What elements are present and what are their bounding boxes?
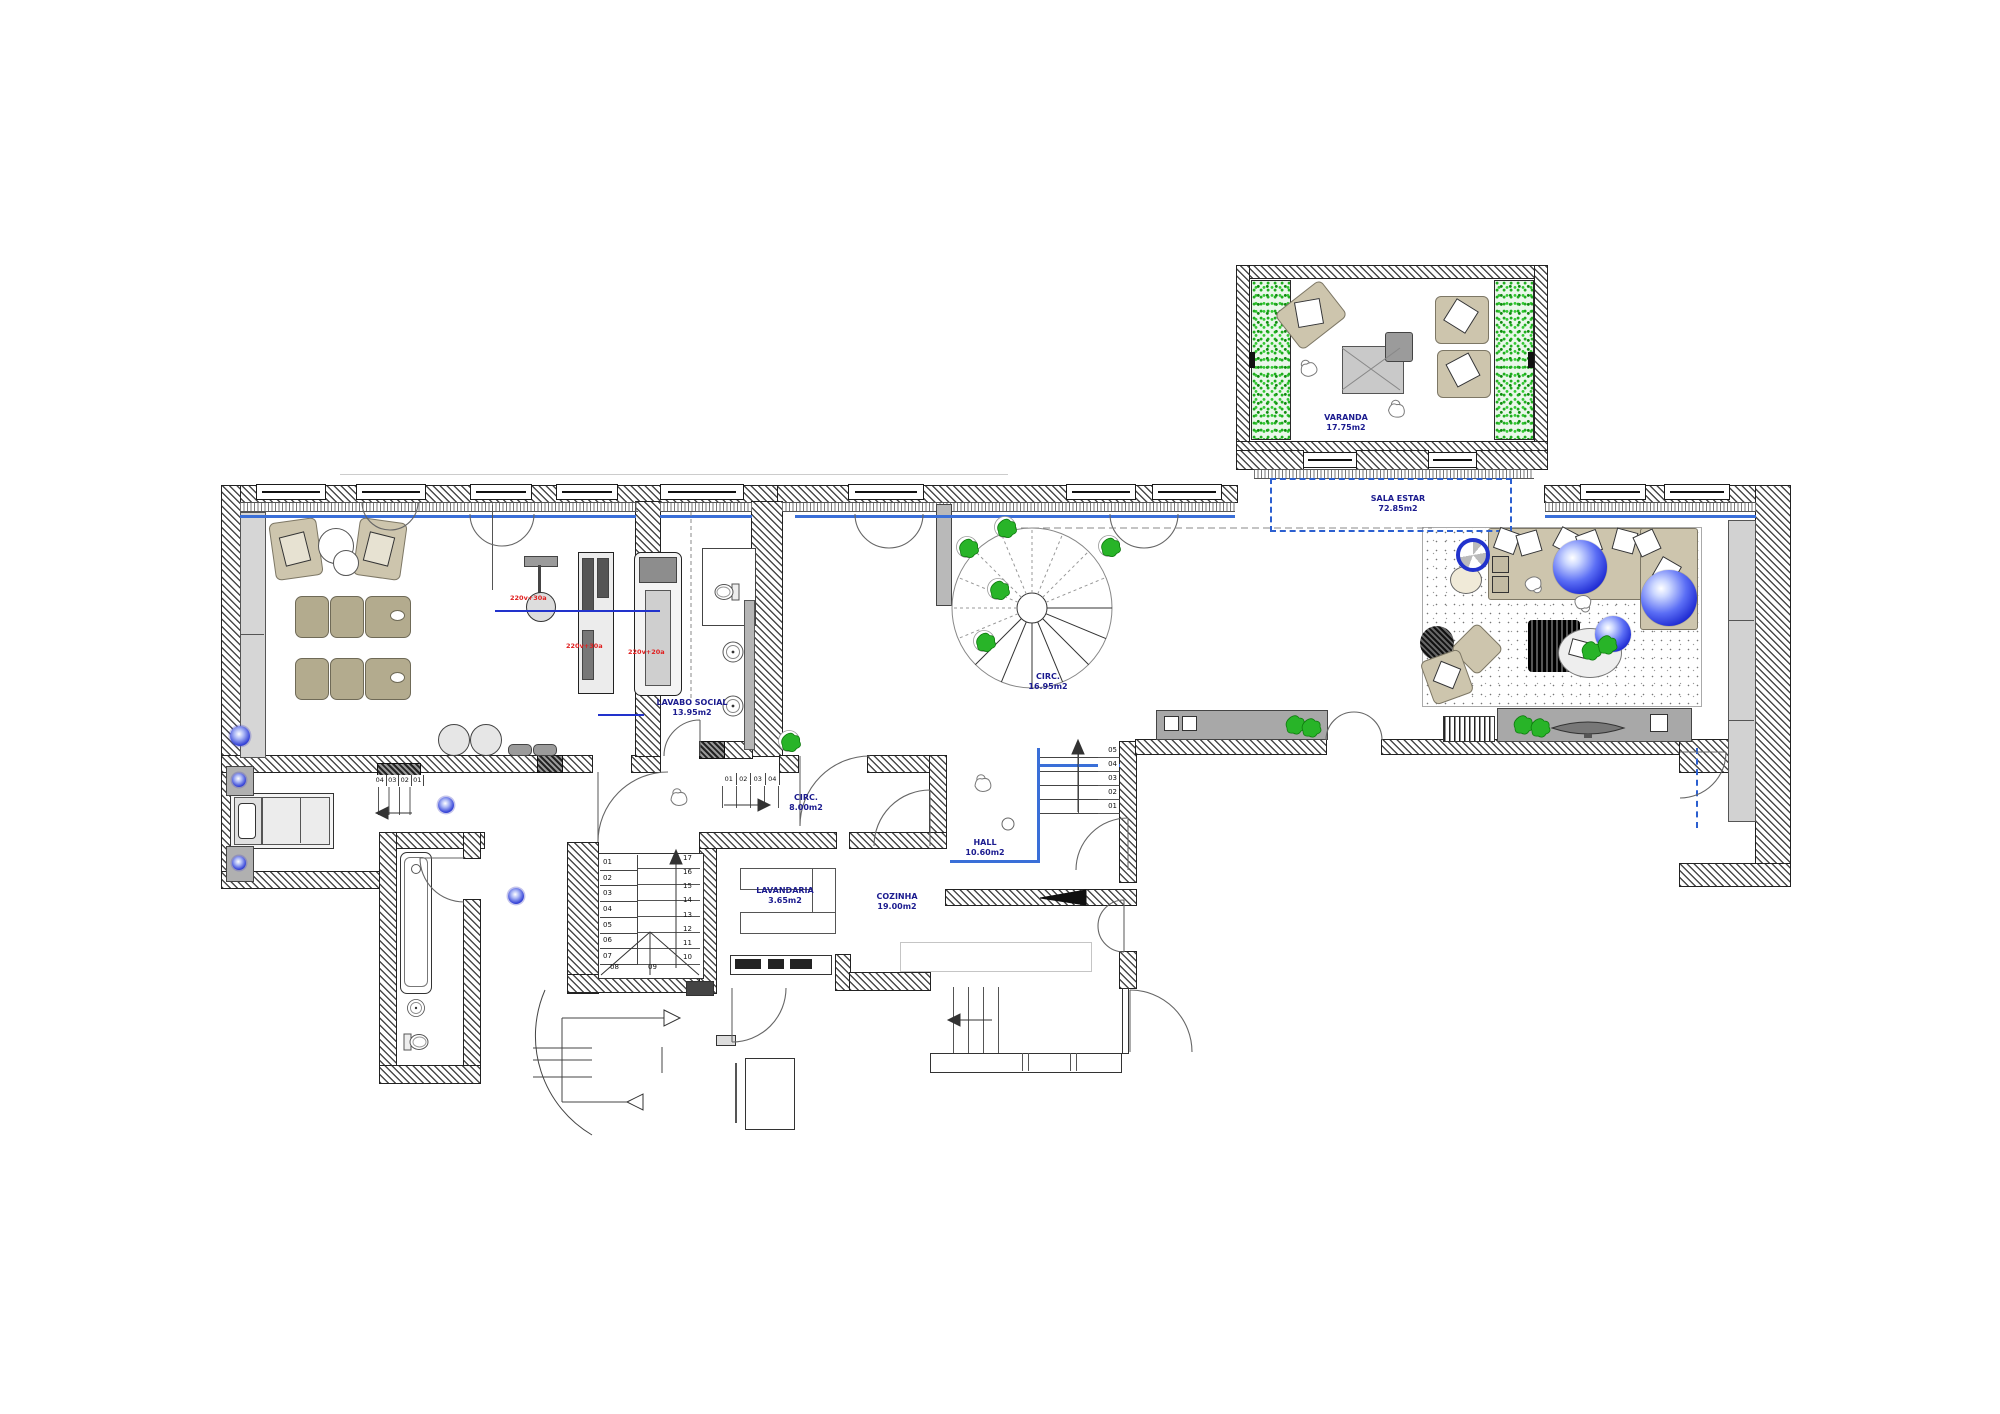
sala-label: SALA ESTAR 72.85m2 [1371, 494, 1425, 515]
lavandaria-area: 3.65m2 [768, 896, 802, 905]
linework-overlay [0, 0, 2000, 1414]
varanda-area: 17.75m2 [1326, 423, 1365, 432]
hall-label: HALL 10.60m2 [965, 838, 1004, 859]
lavabo-label: LAVABO SOCIAL 13.95m2 [657, 698, 728, 719]
floor-plan: VARANDA 17.75m2 [0, 0, 2000, 1414]
varanda-name: VARANDA [1324, 413, 1368, 422]
cozinha-area: 19.00m2 [877, 902, 916, 911]
circ-main-area: 16.95m2 [1028, 682, 1067, 691]
hall-name: HALL [973, 838, 996, 847]
circ-small-label: CIRC. 8.00m2 [789, 793, 823, 814]
person-figures [671, 358, 1592, 830]
lavandaria-name: LAVANDARIA [756, 886, 813, 895]
circ-small-area: 8.00m2 [789, 803, 823, 812]
door-arcs [362, 502, 1726, 1052]
curved-stair [533, 990, 680, 1135]
cozinha-label: COZINHA 19.00m2 [876, 892, 917, 913]
table-diagonals [1342, 348, 1400, 390]
hall-area: 10.60m2 [965, 848, 1004, 857]
lavabo-area: 13.95m2 [672, 708, 711, 717]
sala-area: 72.85m2 [1378, 504, 1417, 513]
lavabo-name: LAVABO SOCIAL [657, 698, 728, 707]
circ-main-name: CIRC. [1036, 672, 1060, 681]
circ-small-name: CIRC. [794, 793, 818, 802]
sanitary-fixtures [404, 584, 743, 1050]
varanda-label: VARANDA 17.75m2 [1324, 413, 1368, 434]
plant-icons [779, 517, 1618, 752]
sala-name: SALA ESTAR [1371, 494, 1425, 503]
cozinha-name: COZINHA [876, 892, 917, 901]
circ-main-label: CIRC. 16.95m2 [1028, 672, 1067, 693]
tv-icon [1552, 722, 1624, 738]
lavandaria-label: LAVANDARIA 3.65m2 [756, 886, 813, 907]
stair-winder-lines [601, 932, 699, 975]
